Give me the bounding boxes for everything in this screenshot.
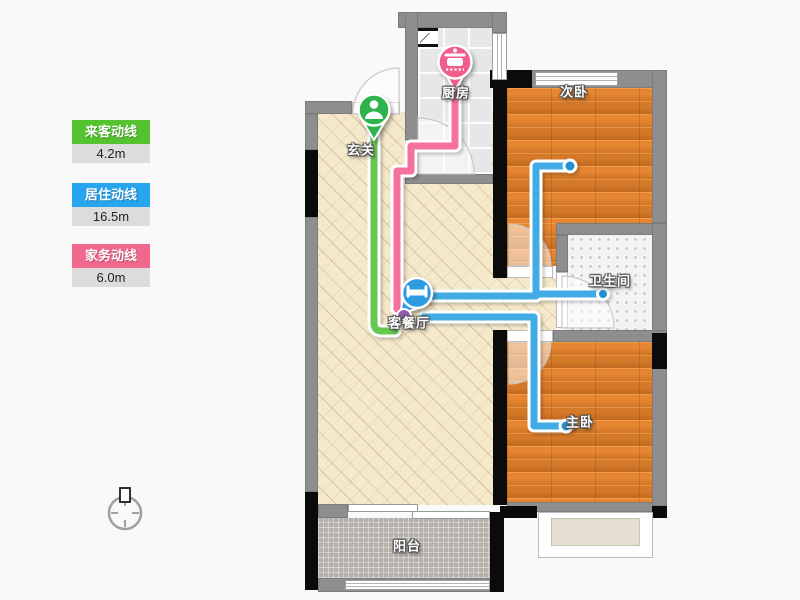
legend-visitor: 来客动线 4.2m (72, 120, 150, 163)
legend-housework: 家务动线 6.0m (72, 244, 150, 287)
resident-line (424, 317, 564, 426)
legend-resident-value: 16.5m (72, 207, 150, 226)
room-label-entry: 玄关 (347, 140, 375, 159)
room-label-kitchen: 厨房 (442, 83, 470, 102)
room-label-living-dining: 客餐厅 (388, 313, 430, 332)
resident-endpoint-dot (598, 289, 609, 300)
room-label-balcony: 阳台 (393, 536, 421, 555)
entry-pin[interactable] (359, 95, 390, 141)
legend-housework-value: 6.0m (72, 268, 150, 287)
room-label-master-bedroom: 主卧 (566, 412, 594, 431)
housework-line (397, 80, 455, 309)
plan-overlay (0, 0, 800, 600)
resident-line (424, 166, 568, 296)
room-label-bathroom: 卫生间 (589, 271, 631, 290)
floor-plan-page: { "legend": { "items": [ {"label": "来客动线… (0, 0, 800, 600)
legend-resident: 居住动线 16.5m (72, 183, 150, 226)
resident-endpoint-dot (564, 160, 576, 172)
room-label-second-bedroom: 次卧 (560, 82, 588, 101)
legend-housework-chip[interactable]: 家务动线 (72, 244, 150, 268)
legend-resident-chip[interactable]: 居住动线 (72, 183, 150, 207)
compass-icon (109, 488, 141, 529)
legend-visitor-value: 4.2m (72, 144, 150, 163)
movement-lines (374, 80, 609, 432)
legend-visitor-chip[interactable]: 来客动线 (72, 120, 150, 144)
